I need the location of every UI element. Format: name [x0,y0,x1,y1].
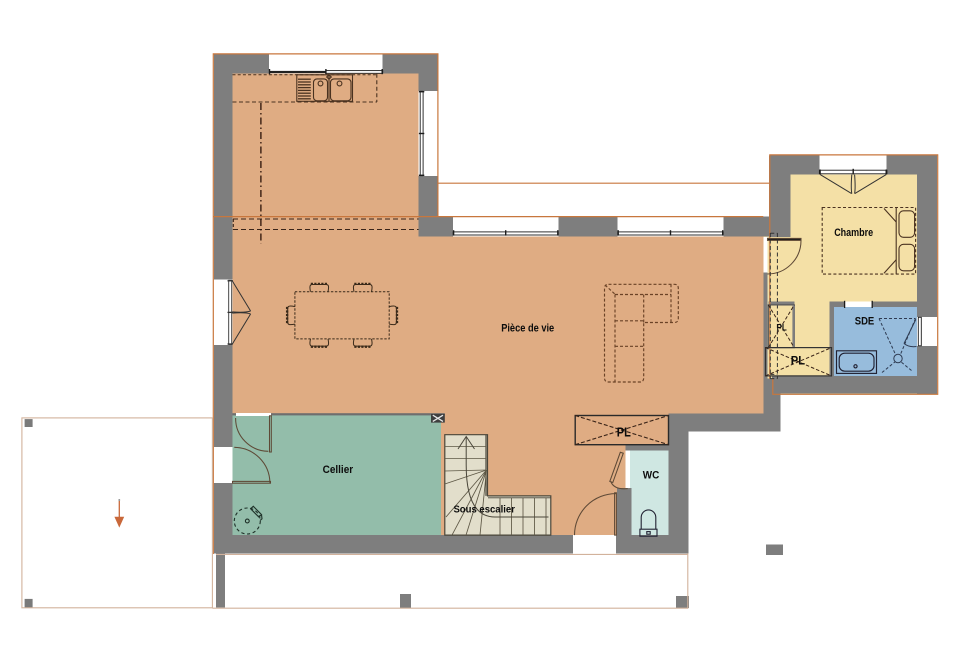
svg-text:Sous escalier: Sous escalier [453,504,515,515]
svg-text:PL: PL [617,425,631,439]
svg-text:Cellier: Cellier [323,464,354,476]
svg-text:Pièce de vie: Pièce de vie [501,322,554,334]
svg-text:Chambre: Chambre [834,227,873,239]
svg-text:SDE: SDE [855,315,875,327]
svg-text:WC: WC [643,469,660,481]
svg-text:PL: PL [791,354,806,368]
svg-text:PL: PL [777,323,788,333]
